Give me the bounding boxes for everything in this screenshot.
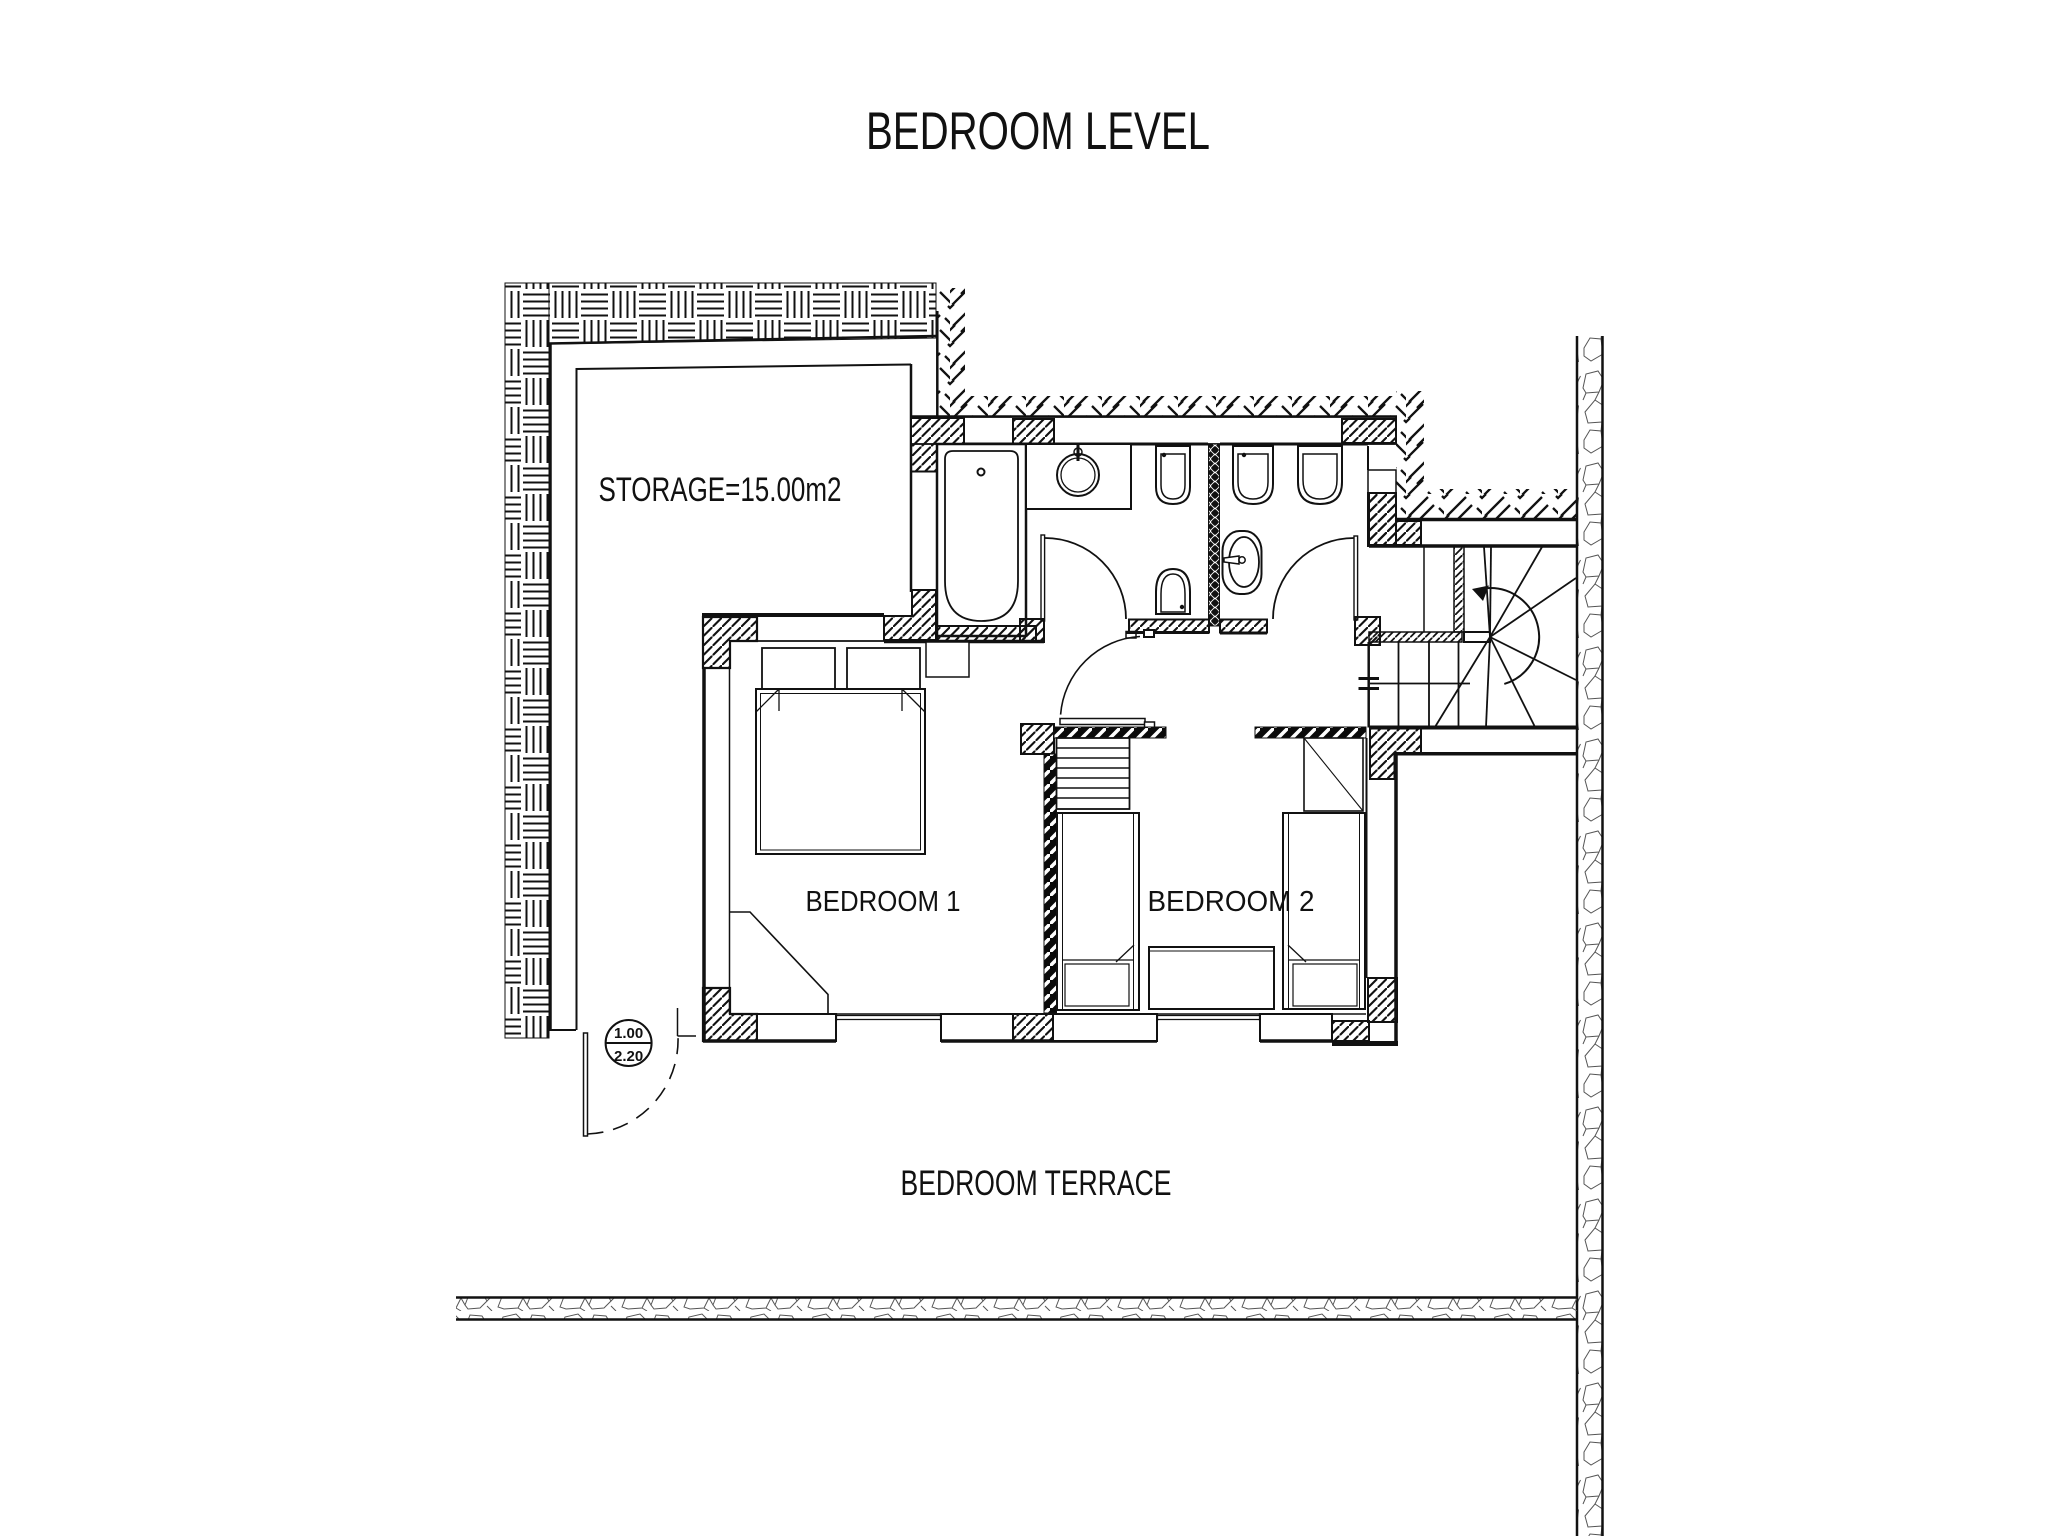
- svg-text:STORAGE=15.00m2: STORAGE=15.00m2: [599, 471, 842, 509]
- svg-text:2.20: 2.20: [614, 1048, 643, 1065]
- svg-text:1.00: 1.00: [614, 1025, 643, 1042]
- svg-text:BEDROOM TERRACE: BEDROOM TERRACE: [901, 1164, 1172, 1203]
- svg-text:BEDROOM LEVEL: BEDROOM LEVEL: [866, 102, 1210, 161]
- svg-text:BEDROOM 2: BEDROOM 2: [1148, 886, 1315, 918]
- svg-text:BEDROOM 1: BEDROOM 1: [806, 886, 961, 918]
